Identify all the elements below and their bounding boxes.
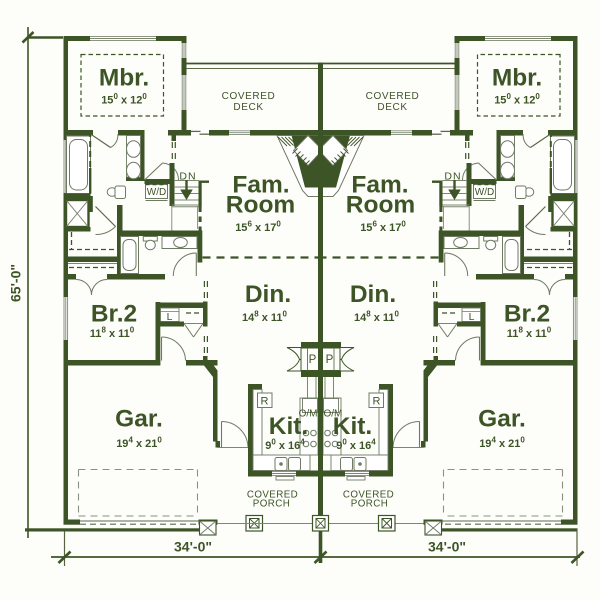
svg-text:L: L — [167, 311, 173, 323]
svg-text:P: P — [326, 354, 334, 366]
svg-text:DN: DN — [444, 171, 461, 183]
svg-text:Gar.: Gar. — [115, 406, 163, 433]
svg-text:PORCH: PORCH — [351, 498, 388, 509]
svg-text:Br.2: Br.2 — [504, 301, 550, 328]
svg-text:Mbr.: Mbr. — [492, 65, 542, 92]
svg-text:DECK: DECK — [233, 102, 263, 113]
svg-text:156 x 170: 156 x 170 — [360, 220, 406, 235]
svg-text:COVERED: COVERED — [366, 91, 420, 102]
svg-text:148 x 110: 148 x 110 — [242, 310, 288, 325]
svg-text:Room: Room — [346, 192, 415, 219]
svg-text:148 x 110: 148 x 110 — [354, 310, 400, 325]
svg-text:90 x 164: 90 x 164 — [265, 438, 305, 453]
svg-text:Room: Room — [226, 192, 295, 219]
svg-text:150 x 120: 150 x 120 — [494, 92, 540, 107]
svg-text:PORCH: PORCH — [253, 498, 290, 509]
svg-text:W/D: W/D — [147, 187, 166, 198]
svg-text:90 x 164: 90 x 164 — [336, 438, 376, 453]
svg-text:Din.: Din. — [350, 281, 396, 308]
svg-text:Mbr.: Mbr. — [99, 65, 149, 92]
svg-text:156 x 170: 156 x 170 — [235, 220, 281, 235]
svg-text:COVERED: COVERED — [222, 91, 276, 102]
svg-text:118 x 110: 118 x 110 — [507, 326, 552, 341]
svg-text:194 x 210: 194 x 210 — [116, 436, 162, 451]
svg-text:W/D: W/D — [475, 187, 494, 198]
svg-text:O/M: O/M — [324, 409, 343, 420]
svg-text:R: R — [373, 396, 381, 408]
svg-text:L: L — [469, 311, 475, 323]
svg-text:34'-0": 34'-0" — [174, 539, 212, 555]
svg-text:150 x 120: 150 x 120 — [101, 92, 147, 107]
svg-text:Din.: Din. — [245, 281, 291, 308]
svg-text:118 x 110: 118 x 110 — [90, 326, 135, 341]
svg-text:34'-0": 34'-0" — [428, 539, 466, 555]
svg-text:DECK: DECK — [377, 102, 407, 113]
svg-text:65'-0": 65'-0" — [8, 264, 24, 302]
svg-text:O/M: O/M — [299, 409, 318, 420]
svg-text:DN: DN — [179, 171, 196, 183]
svg-text:194 x 210: 194 x 210 — [479, 436, 525, 451]
svg-text:R: R — [261, 396, 269, 408]
svg-text:Br.2: Br.2 — [91, 301, 137, 328]
svg-text:Gar.: Gar. — [478, 406, 526, 433]
svg-text:P: P — [309, 354, 317, 366]
